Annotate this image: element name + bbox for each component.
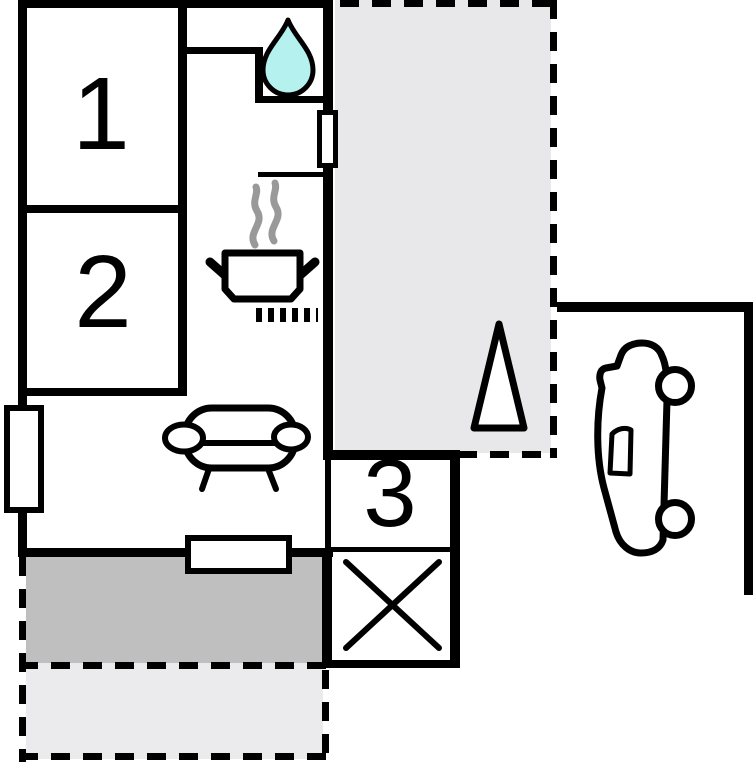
steam-icon — [253, 183, 278, 245]
terrace-border-top-dashed — [340, 0, 556, 7]
room3-right-wall — [450, 450, 460, 668]
window-bottom-wall — [185, 535, 292, 574]
patio-divider-dashed — [19, 662, 330, 669]
wall-between-room1-room2 — [27, 205, 178, 213]
patio-border-bottom-dashed — [19, 753, 330, 760]
stove-icon — [200, 175, 335, 325]
window-right-wall — [317, 110, 338, 168]
parking-wall-top — [557, 302, 753, 312]
wall-between-room3-utility — [330, 547, 450, 552]
room-2-label: 2 — [43, 240, 163, 343]
open-patio-area — [26, 663, 323, 759]
cross-icon — [340, 556, 445, 654]
sink-alcove-wall-top — [178, 47, 263, 54]
floor-plan: 1 2 3 — [0, 0, 753, 768]
terrace-border-bottom-dashed — [458, 451, 557, 458]
room-3-label: 3 — [330, 446, 450, 542]
outer-wall-top — [18, 0, 333, 8]
patio-border-right-dashed — [322, 670, 329, 758]
room2-bottom-wall — [27, 388, 187, 396]
utility-bottom-wall — [322, 660, 460, 668]
stove-pot-icon — [210, 253, 315, 299]
parking-wall-right — [744, 302, 753, 595]
window-left-wall — [4, 405, 44, 513]
patio-border-left-dashed — [19, 557, 26, 762]
utility-left-wall — [322, 557, 332, 668]
car-icon — [596, 340, 696, 564]
terrace-border-right-dashed — [550, 0, 557, 458]
tree-icon — [468, 318, 530, 434]
water-drop-icon — [258, 16, 318, 100]
bedroom-divider-wall-vertical — [178, 0, 187, 396]
room-1-label: 1 — [41, 62, 161, 165]
sofa-icon — [160, 400, 315, 495]
